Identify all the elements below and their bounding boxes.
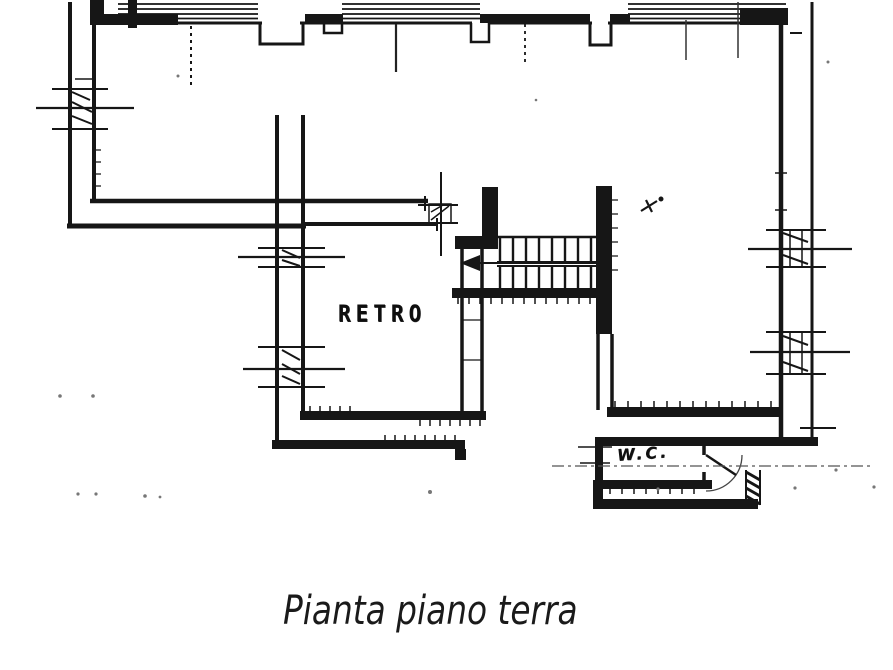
right-room-south-wall	[607, 401, 782, 417]
window-symbol-central-upper	[238, 248, 345, 267]
right-exterior-wall	[775, 2, 836, 442]
window-symbol-right-lower	[750, 332, 850, 374]
ceiling-mark-icon	[641, 197, 663, 212]
scan-noise-dots	[58, 61, 875, 499]
retro-room-south-walls	[272, 406, 486, 460]
door-recess-icon	[590, 23, 611, 45]
window-symbol-left	[36, 79, 134, 129]
window-symbol-central-lower	[243, 347, 345, 387]
corridor-walls	[67, 172, 458, 256]
room-label-wc: W.C.	[616, 442, 669, 465]
floor-plan-drawing	[0, 0, 893, 670]
wall-hatch-ticks	[458, 298, 590, 304]
central-west-wall	[277, 115, 303, 444]
window-symbol-right-upper	[748, 230, 852, 267]
plan-caption: Pianta piano terra	[283, 588, 578, 634]
room-label-retro: RETRO	[338, 301, 426, 327]
door-recess-icon	[471, 23, 489, 42]
wc-annex-walls	[578, 437, 818, 509]
staircase	[452, 186, 618, 412]
top-facade-wall	[90, 0, 802, 88]
left-exterior-wall	[70, 2, 101, 228]
wall-hatch-ticks	[612, 200, 618, 270]
door-recess-icon	[260, 23, 303, 44]
floor-plan-sheet: RETRO W.C. Pianta piano terra	[0, 0, 893, 670]
window-band-icon	[118, 4, 786, 19]
